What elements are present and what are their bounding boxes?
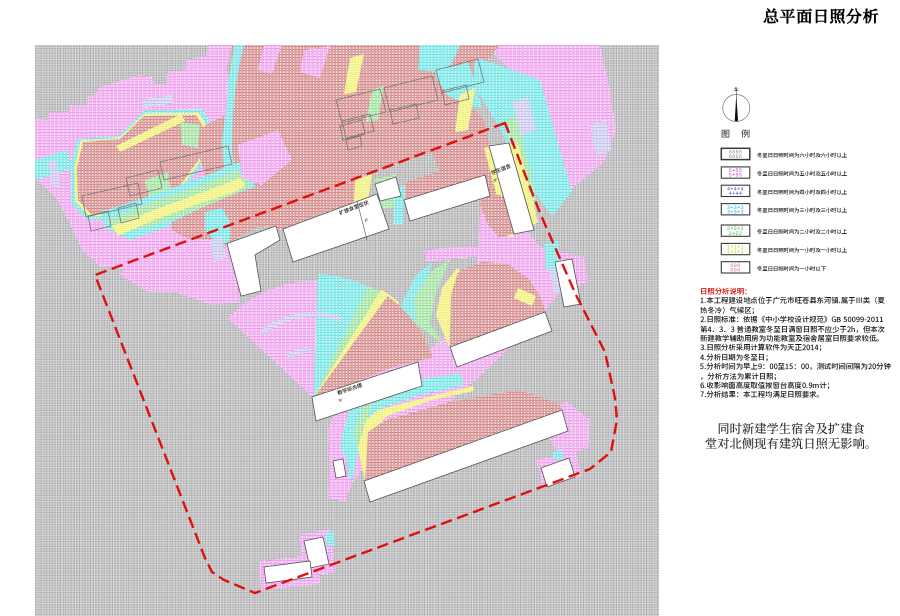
- svg-text:冬至日日照时间为六小时及六小时以上: 冬至日日照时间为六小时及六小时以上: [756, 151, 848, 159]
- svg-text:5+55: 5+55: [729, 173, 743, 179]
- svg-text:冬至日日照时间为三小时及三小时以上: 冬至日日照时间为三小时及三小时以上: [756, 206, 848, 214]
- svg-text:冬至日日照时间为一小时及一小时以上: 冬至日日照时间为一小时及一小时以上: [756, 246, 848, 254]
- svg-text:北: 北: [733, 87, 739, 93]
- svg-text:图例: 图例: [721, 127, 761, 140]
- svg-text:000: 000: [730, 268, 740, 274]
- svg-text:1+1+1: 1+1+1: [727, 249, 744, 255]
- svg-text:冬至日日照时间为五小时及五小时以上: 冬至日日照时间为五小时及五小时以上: [756, 170, 848, 178]
- svg-text:冬至日日照时间为四小时及四小时以上: 冬至日日照时间为四小时及四小时以上: [756, 188, 848, 196]
- svg-text:冬至日日照时间为一小时以下: 冬至日日照时间为一小时以下: [756, 264, 827, 272]
- svg-text:6666: 6666: [729, 154, 743, 160]
- svg-text:2+22: 2+22: [729, 231, 743, 237]
- svg-text:3+3+3: 3+3+3: [727, 209, 744, 215]
- svg-text:4+44: 4+44: [729, 191, 743, 197]
- svg-text:冬至日日照时间为二小时及二小时以上: 冬至日日照时间为二小时及二小时以上: [756, 228, 848, 236]
